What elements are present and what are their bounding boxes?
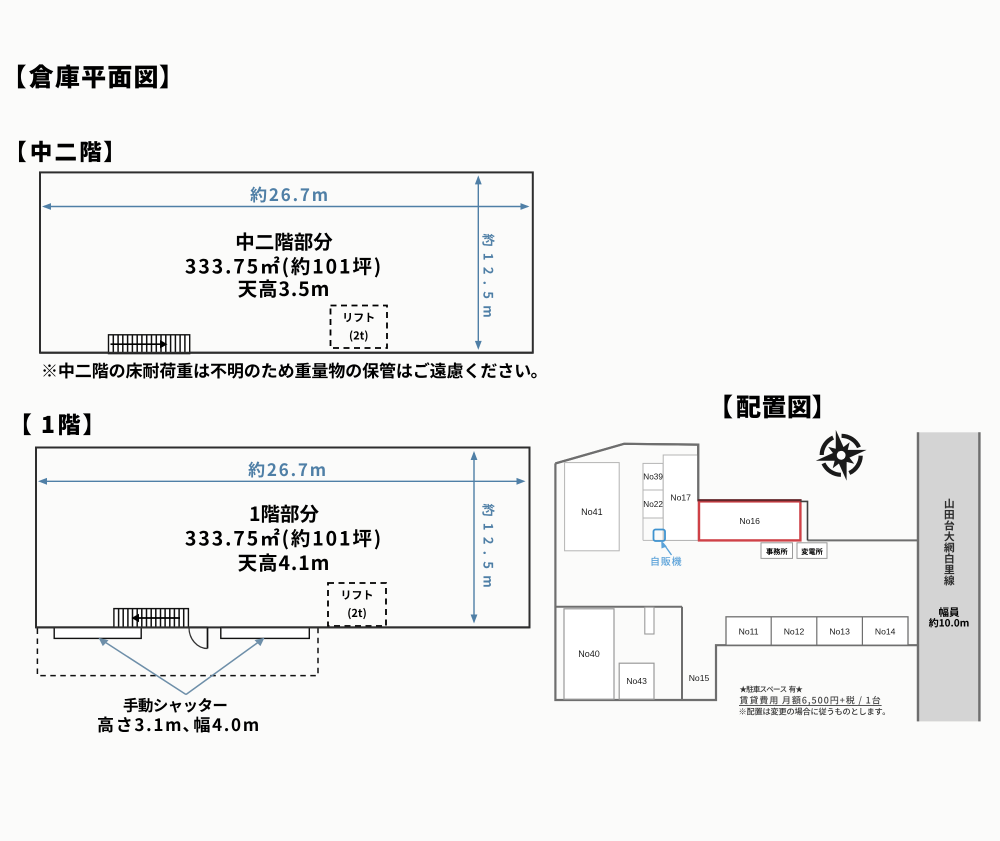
svg-text:No17: No17 bbox=[670, 493, 691, 503]
svg-text:No15: No15 bbox=[689, 673, 710, 683]
svg-text:No40: No40 bbox=[578, 649, 600, 659]
svg-text:No41: No41 bbox=[581, 507, 603, 517]
svg-text:No14: No14 bbox=[875, 627, 896, 637]
svg-text:No12: No12 bbox=[784, 627, 805, 637]
svg-text:No13: No13 bbox=[829, 627, 850, 637]
svg-text:No22: No22 bbox=[643, 500, 663, 509]
svg-text:No16: No16 bbox=[739, 516, 760, 526]
svg-text:No43: No43 bbox=[626, 676, 647, 686]
svg-text:No11: No11 bbox=[739, 627, 759, 637]
svg-text:No39: No39 bbox=[643, 473, 663, 482]
